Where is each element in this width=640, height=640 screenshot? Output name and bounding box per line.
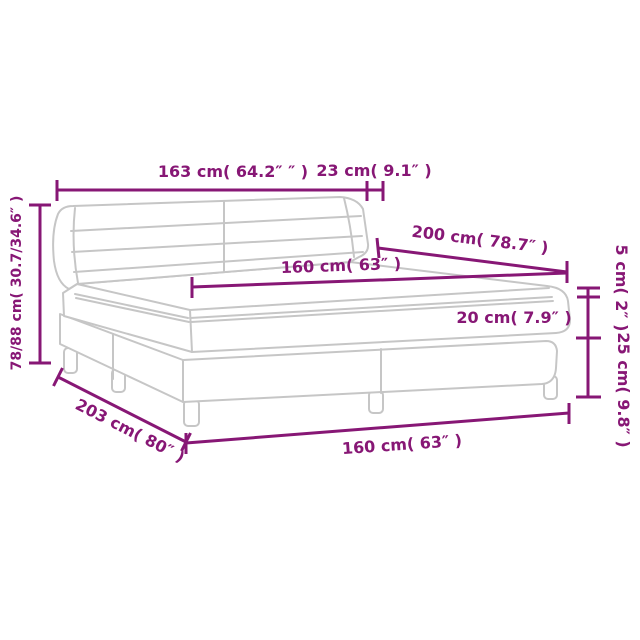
label-base-height: 25 cm( 9.8″ ) xyxy=(615,332,631,447)
dimension-right-heights xyxy=(576,288,601,397)
label-topper-height: 5 cm( 2″ ) xyxy=(613,245,629,332)
label-headboard-depth: 23 cm( 9.1″ ) xyxy=(316,163,431,179)
label-mattress-width: 160 cm( 63″ ) xyxy=(281,256,402,276)
label-headboard-height: 78/88 cm( 30.7/34.6″ ) xyxy=(10,196,24,371)
dimension-headboard-height xyxy=(29,205,51,363)
label-mattress-height: 20 cm( 7.9″ ) xyxy=(456,310,571,326)
dimension-diagram: 163 cm( 64.2″ ″ ) 23 cm( 9.1″ ) 78/88 cm… xyxy=(0,0,640,640)
label-headboard-width: 163 cm( 64.2″ ″ ) xyxy=(158,164,308,180)
